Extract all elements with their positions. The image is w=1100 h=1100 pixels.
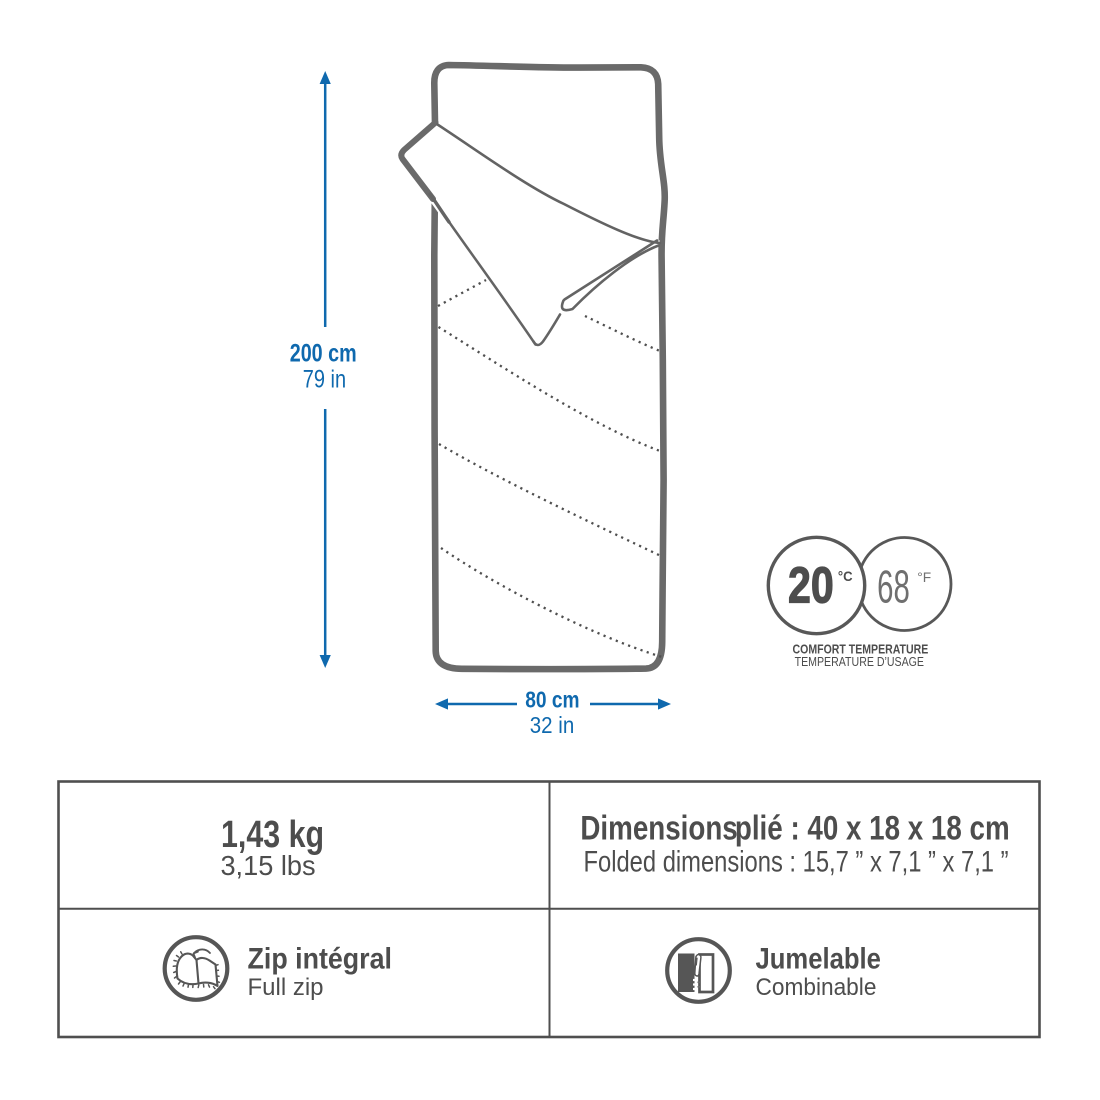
svg-text:TEMPERATURE D’USAGE: TEMPERATURE D’USAGE <box>795 654 924 669</box>
svg-text:Jumelable: Jumelable <box>756 942 881 975</box>
svg-text:°F: °F <box>917 569 931 585</box>
svg-text:20: 20 <box>788 556 834 613</box>
svg-text:200 cm: 200 cm <box>290 340 357 368</box>
svg-text:Zip intégral: Zip intégral <box>248 942 392 976</box>
svg-text:Dimensionsplié : 40 x 18 x 18: Dimensionsplié : 40 x 18 x 18 cm <box>580 809 1009 847</box>
svg-text:3,15 lbs: 3,15 lbs <box>220 850 315 881</box>
svg-text:Full zip: Full zip <box>248 974 324 1001</box>
svg-text:68: 68 <box>877 562 910 613</box>
svg-text:80 cm: 80 cm <box>525 688 579 713</box>
svg-text:79 in: 79 in <box>303 366 346 394</box>
svg-text:°C: °C <box>838 569 853 585</box>
svg-text:Combinable: Combinable <box>756 973 877 1000</box>
svg-text:32 in: 32 in <box>530 712 574 739</box>
svg-text:Folded dimensions : 15,7 ” x 7: Folded dimensions : 15,7 ” x 7,1 ” x 7,1… <box>583 845 1008 878</box>
